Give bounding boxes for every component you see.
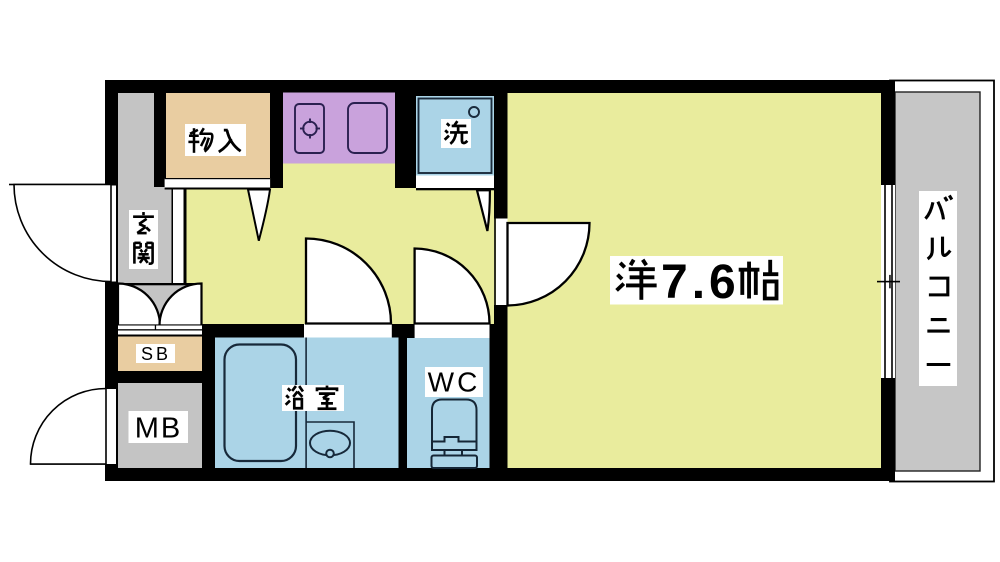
svg-text:SB: SB bbox=[141, 344, 171, 364]
svg-text:MB: MB bbox=[135, 413, 183, 445]
svg-text:7.6: 7.6 bbox=[661, 256, 740, 309]
svg-text:WC: WC bbox=[428, 367, 481, 398]
